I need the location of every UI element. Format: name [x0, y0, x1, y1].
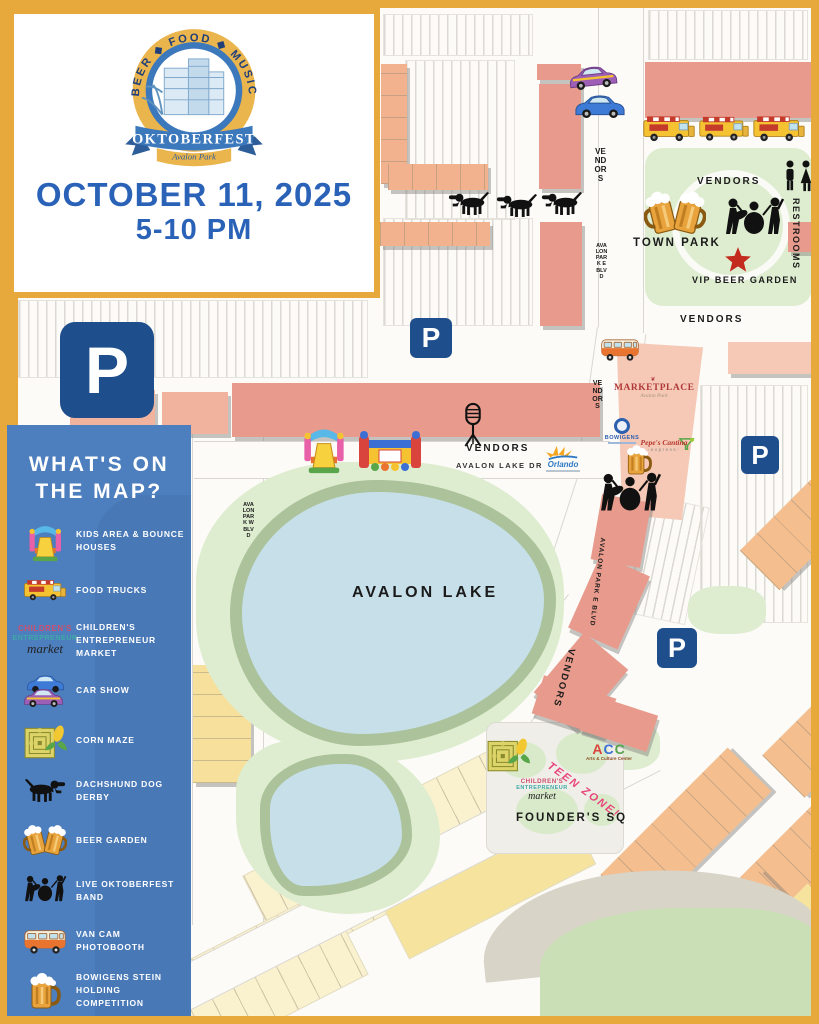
- parking-lot: [648, 10, 808, 60]
- acc-name: ACC: [582, 742, 636, 756]
- marketplace-name: MARKETPLACE: [614, 383, 694, 393]
- bounce-castle-icon: [355, 426, 425, 474]
- map-label-vendors: VENDORS: [680, 314, 743, 325]
- legend-item: CAR SHOW: [7, 670, 191, 712]
- van-photobooth-icon: [23, 920, 67, 962]
- event-dates: OCTOBER 11, 2025 5-10 PM: [36, 176, 352, 247]
- dachshund-icon: [540, 190, 584, 217]
- acc-sub: Arts & Culture Center: [582, 756, 636, 761]
- stein-icon: [23, 970, 67, 1012]
- legend-item: FOOD TRUCKS: [7, 570, 191, 612]
- legend-title-line1: WHAT'S ON: [7, 451, 191, 478]
- event-header-panel: BEER ◆ FOOD ◆ MUSIC OKTOBERFEST Avalon P…: [8, 8, 380, 298]
- logo-subtitle: Avalon Park: [171, 151, 217, 161]
- map-label-restrooms: RESTROOMS: [791, 198, 801, 270]
- live-band-icon: [722, 193, 786, 245]
- legend-sidebar: WHAT'S ON THE MAP? KIDS AREA & BOUNCE HO…: [7, 425, 191, 1016]
- childrens-market-line1: CHILDREN'S: [500, 778, 584, 785]
- bowigens-tagline-bar: [608, 442, 636, 444]
- childrens-market-line3: market: [500, 791, 584, 803]
- legend-label: CHILDREN'S ENTREPRENEUR MARKET: [76, 621, 185, 659]
- parking-icon: P: [741, 436, 779, 474]
- orlando-tagline-bar: [546, 470, 580, 472]
- corn-maze-icon: [486, 733, 530, 775]
- van-photobooth-icon: [600, 336, 640, 362]
- oktoberfest-logo: BEER ◆ FOOD ◆ MUSIC OKTOBERFEST Avalon P…: [105, 18, 283, 176]
- legend-label: BEER GARDEN: [76, 834, 148, 847]
- gold-strip: [0, 288, 18, 433]
- map-label-vendors: VENDORS: [466, 443, 529, 454]
- pepes-sub: -express-: [638, 447, 690, 452]
- legend-label: CORN MAZE: [76, 734, 135, 747]
- map-label-avalon-park-e-blvd: AVALON PARK E BLVD: [595, 243, 608, 280]
- building: [645, 62, 812, 118]
- building: [380, 222, 490, 246]
- map-label-vendors: VENDORS: [697, 176, 760, 187]
- building: [540, 222, 582, 326]
- legend-label: FOOD TRUCKS: [76, 584, 147, 597]
- logo-title: OKTOBERFEST: [132, 131, 256, 147]
- corn-maze-icon: [23, 720, 67, 762]
- orlando-sun-icon: [543, 445, 583, 461]
- car-show-icon: [23, 670, 67, 712]
- orlando-logo: Orlando: [540, 445, 586, 472]
- map-label-avalon-lake: AVALON LAKE: [352, 584, 498, 602]
- map-label-vendors: VENDORS: [594, 148, 607, 184]
- marketplace-flourish: ❦: [614, 376, 694, 383]
- south-lawn: [540, 908, 819, 1024]
- legend-item: KIDS AREA & BOUNCE HOUSES: [7, 520, 191, 562]
- building-row: [762, 642, 819, 798]
- legend-item: DACHSHUND DOG DERBY: [7, 770, 191, 812]
- parking-icon: P: [410, 318, 452, 358]
- orlando-name: Orlando: [540, 461, 586, 469]
- star-icon: [724, 246, 752, 274]
- dachshund-icon: [447, 190, 491, 217]
- childrens-market-logo: CHILDREN'S ENTREPRENEUR market: [500, 778, 584, 803]
- legend-label: DACHSHUND DOG DERBY: [76, 778, 185, 804]
- food-truck-icon: [640, 115, 698, 143]
- parking-icon: P: [60, 322, 154, 418]
- beer-garden-icon: [23, 820, 67, 862]
- legend-item: VAN CAM PHOTOBOOTH: [7, 920, 191, 962]
- food-truck-icon: [698, 115, 750, 143]
- live-band-icon: [23, 870, 67, 912]
- bounce-house-icon: [23, 520, 67, 562]
- legend-item: LIVE OKTOBERFEST BAND: [7, 870, 191, 912]
- legend-label: KIDS AREA & BOUNCE HOUSES: [76, 528, 184, 554]
- legend-title-line2: THE MAP?: [7, 478, 191, 505]
- map-label-vendors: VENDORS: [591, 380, 604, 411]
- pepes-name: Pepe's Cantina: [638, 438, 690, 447]
- food-truck-icon: [752, 115, 806, 143]
- legend-item: BEER GARDEN: [7, 820, 191, 862]
- marketplace-sub: Avalon Park: [614, 393, 694, 399]
- classic-car-icon: [567, 61, 619, 92]
- dachshund-icon: [495, 192, 539, 219]
- lawn-patch: [688, 586, 766, 634]
- map-label-avalon-park-w-blvd: AVALON PARK W BLVD: [242, 502, 255, 539]
- acc-letter-a: A: [592, 741, 603, 757]
- parking-lot: [383, 14, 533, 56]
- acc-letter-c1: C: [603, 741, 614, 757]
- bowigens-crest-icon: [614, 418, 630, 434]
- event-date: OCTOBER 11, 2025: [36, 176, 352, 214]
- parking-icon: P: [657, 628, 697, 668]
- map-label-town-park: TOWN PARK: [633, 237, 721, 249]
- childrens-market-logo: CHILDREN'SENTREPRENEURmarket: [23, 620, 67, 662]
- map-label-avalon-lake-dr: AVALON LAKE DR: [456, 461, 543, 470]
- beer-garden-icon: [644, 184, 706, 242]
- legend-item: CHILDREN'SENTREPRENEURmarketCHILDREN'S E…: [7, 620, 191, 662]
- bounce-house-icon: [300, 421, 348, 475]
- legend-label: VAN CAM PHOTOBOOTH: [76, 928, 185, 954]
- legend-title: WHAT'S ON THE MAP?: [7, 451, 191, 506]
- food-truck-icon: [23, 570, 67, 612]
- marketplace-logo: ❦ MARKETPLACE Avalon Park: [614, 376, 694, 399]
- restrooms-icon: [782, 158, 814, 194]
- classic-car-icon: [574, 92, 626, 120]
- acc-letter-c2: C: [615, 741, 626, 757]
- legend-label: LIVE OKTOBERFEST BAND: [76, 878, 185, 904]
- karaoke-mic-icon: [458, 402, 488, 448]
- oktoberfest-event-map: P P P P VENDORS VENDORS TOWN PARK VIP BE…: [0, 0, 819, 1024]
- map-label-vip-beer-garden: VIP BEER GARDEN: [692, 275, 798, 285]
- legend-item: CORN MAZE: [7, 720, 191, 762]
- dachshund-icon: [23, 770, 67, 812]
- legend-label: CAR SHOW: [76, 684, 130, 697]
- event-time: 5-10 PM: [36, 214, 352, 247]
- building: [728, 342, 812, 374]
- building: [388, 164, 488, 190]
- legend-item: BOWIGENS STEIN HOLDING COMPETITION: [7, 970, 191, 1012]
- acc-logo: ACC Arts & Culture Center: [582, 742, 636, 761]
- legend-label: BOWIGENS STEIN HOLDING COMPETITION: [76, 971, 185, 1009]
- pepes-cantina-logo: Pepe's Cantina -express-: [638, 438, 690, 452]
